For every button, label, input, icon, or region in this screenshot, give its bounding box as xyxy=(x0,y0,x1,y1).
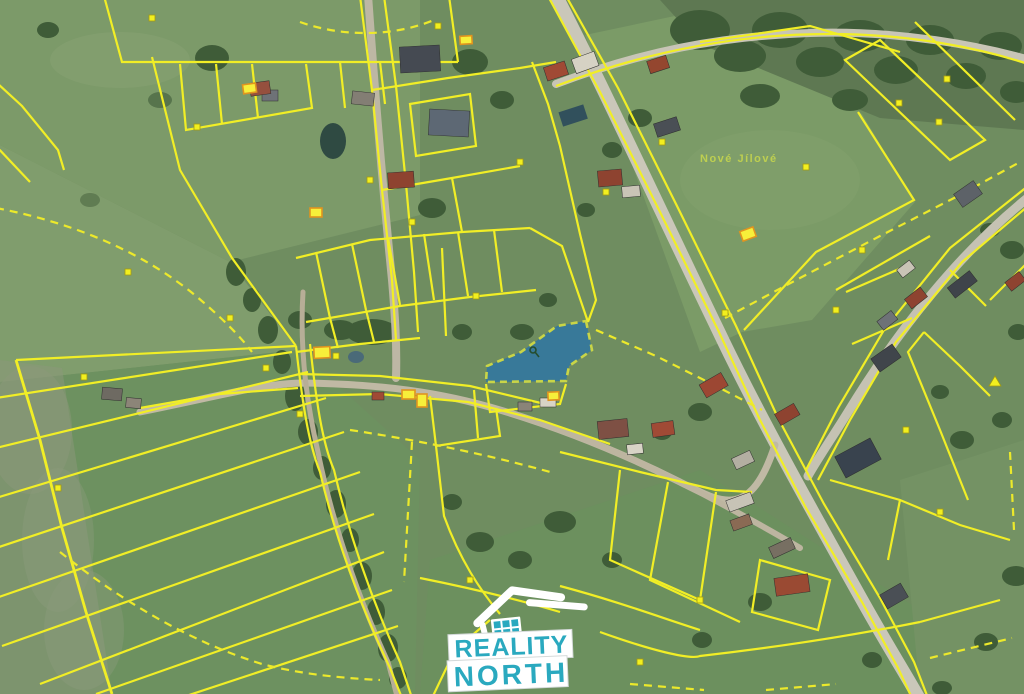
pond-small xyxy=(348,351,364,363)
logo-text-north: NORTH xyxy=(453,657,569,693)
place-label: Nové Jílové xyxy=(700,153,778,165)
pond xyxy=(320,123,346,159)
map-viewport[interactable]: Nové Jílové REALITY NORTH xyxy=(0,0,1024,694)
cadastral-map[interactable]: Nové Jílové REALITY NORTH xyxy=(0,0,1024,694)
